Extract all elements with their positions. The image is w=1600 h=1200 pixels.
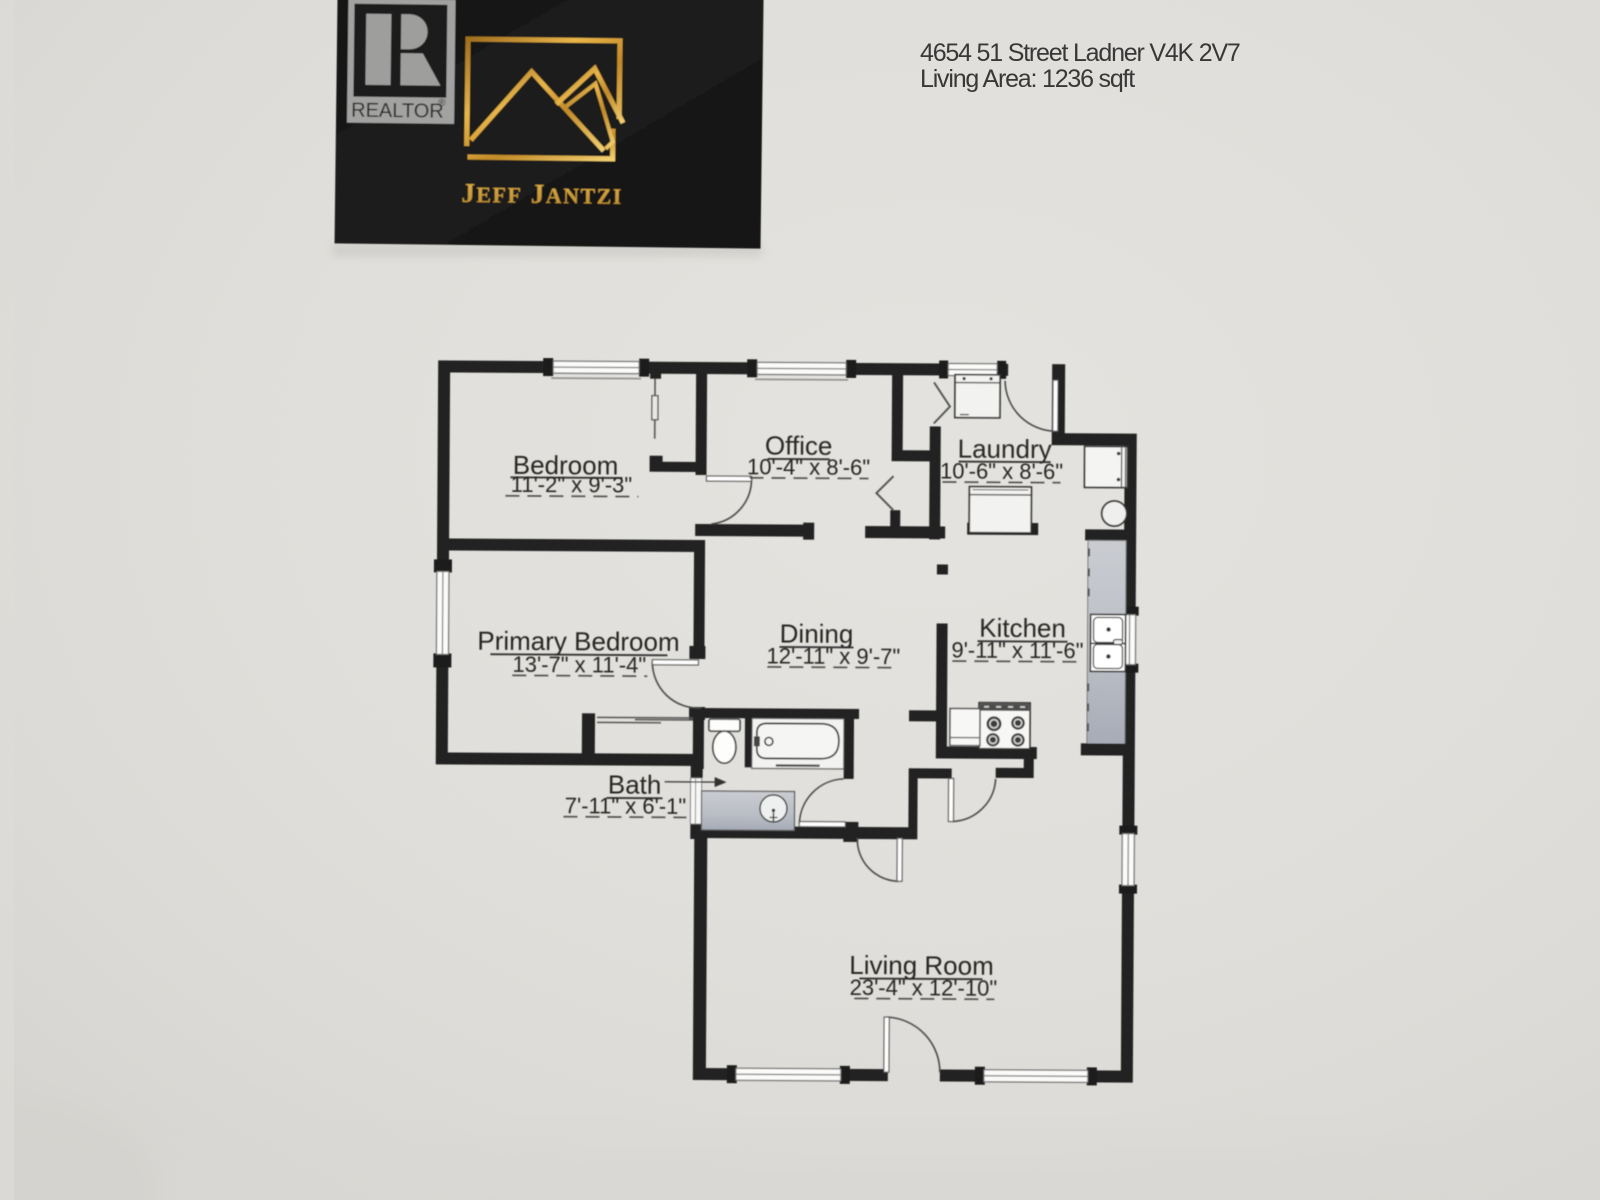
svg-text:12'-11" x 9'-7": 12'-11" x 9'-7" bbox=[766, 643, 900, 669]
svg-text:Living Area: 1236 sqft: Living Area: 1236 sqft bbox=[920, 65, 1135, 93]
svg-text:10'-4" x 8'-6": 10'-4" x 8'-6" bbox=[747, 454, 870, 480]
svg-text:7'-11" x 6'-1": 7'-11" x 6'-1" bbox=[565, 793, 687, 819]
svg-text:10'-6" x 8'-6": 10'-6" x 8'-6" bbox=[940, 458, 1063, 484]
svg-text:®: ® bbox=[438, 98, 446, 109]
svg-text:13'-7" x 11'-4": 13'-7" x 11'-4" bbox=[512, 652, 646, 678]
svg-text:REALTOR: REALTOR bbox=[351, 100, 444, 123]
svg-text:JEFF JANTZI: JEFF JANTZI bbox=[461, 178, 623, 210]
svg-text:4654 51 Street Ladner V4K 2V7: 4654 51 Street Ladner V4K 2V7 bbox=[920, 39, 1240, 67]
svg-text:11'-2" x 9'-3": 11'-2" x 9'-3" bbox=[511, 472, 633, 498]
svg-text:9'-11" x 11'-6": 9'-11" x 11'-6" bbox=[951, 638, 1083, 664]
svg-text:23'-4" x 12'-10": 23'-4" x 12'-10" bbox=[850, 975, 998, 1001]
